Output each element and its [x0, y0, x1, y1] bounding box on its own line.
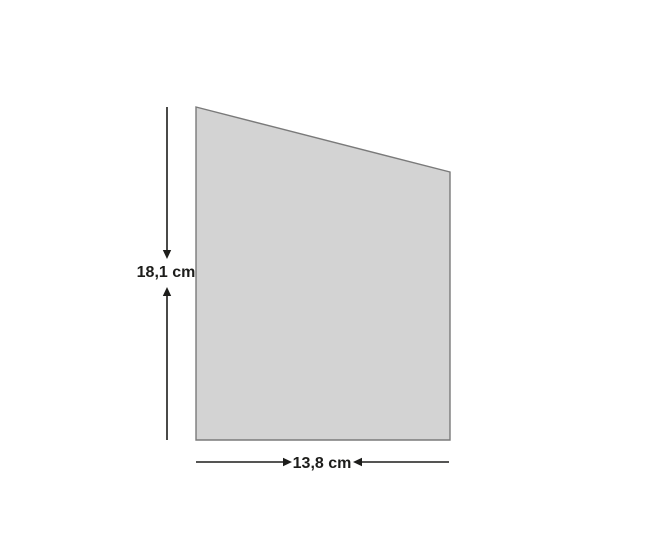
trapezoid-shape: [196, 107, 450, 440]
arrow-left-icon: [353, 458, 362, 466]
arrow-down-icon: [163, 250, 171, 259]
arrow-right-icon: [283, 458, 292, 466]
geometry-diagram: 18,1 cm 13,8 cm: [0, 0, 670, 543]
trapezoid-figure-svg: 18,1 cm 13,8 cm: [0, 0, 670, 543]
width-dimension-label: 13,8 cm: [293, 455, 352, 472]
diagram-page: { "figure": { "shape": "right trapezoid"…: [0, 0, 670, 543]
height-dimension-label: 18,1 cm: [137, 264, 196, 281]
arrow-up-icon: [163, 287, 171, 296]
